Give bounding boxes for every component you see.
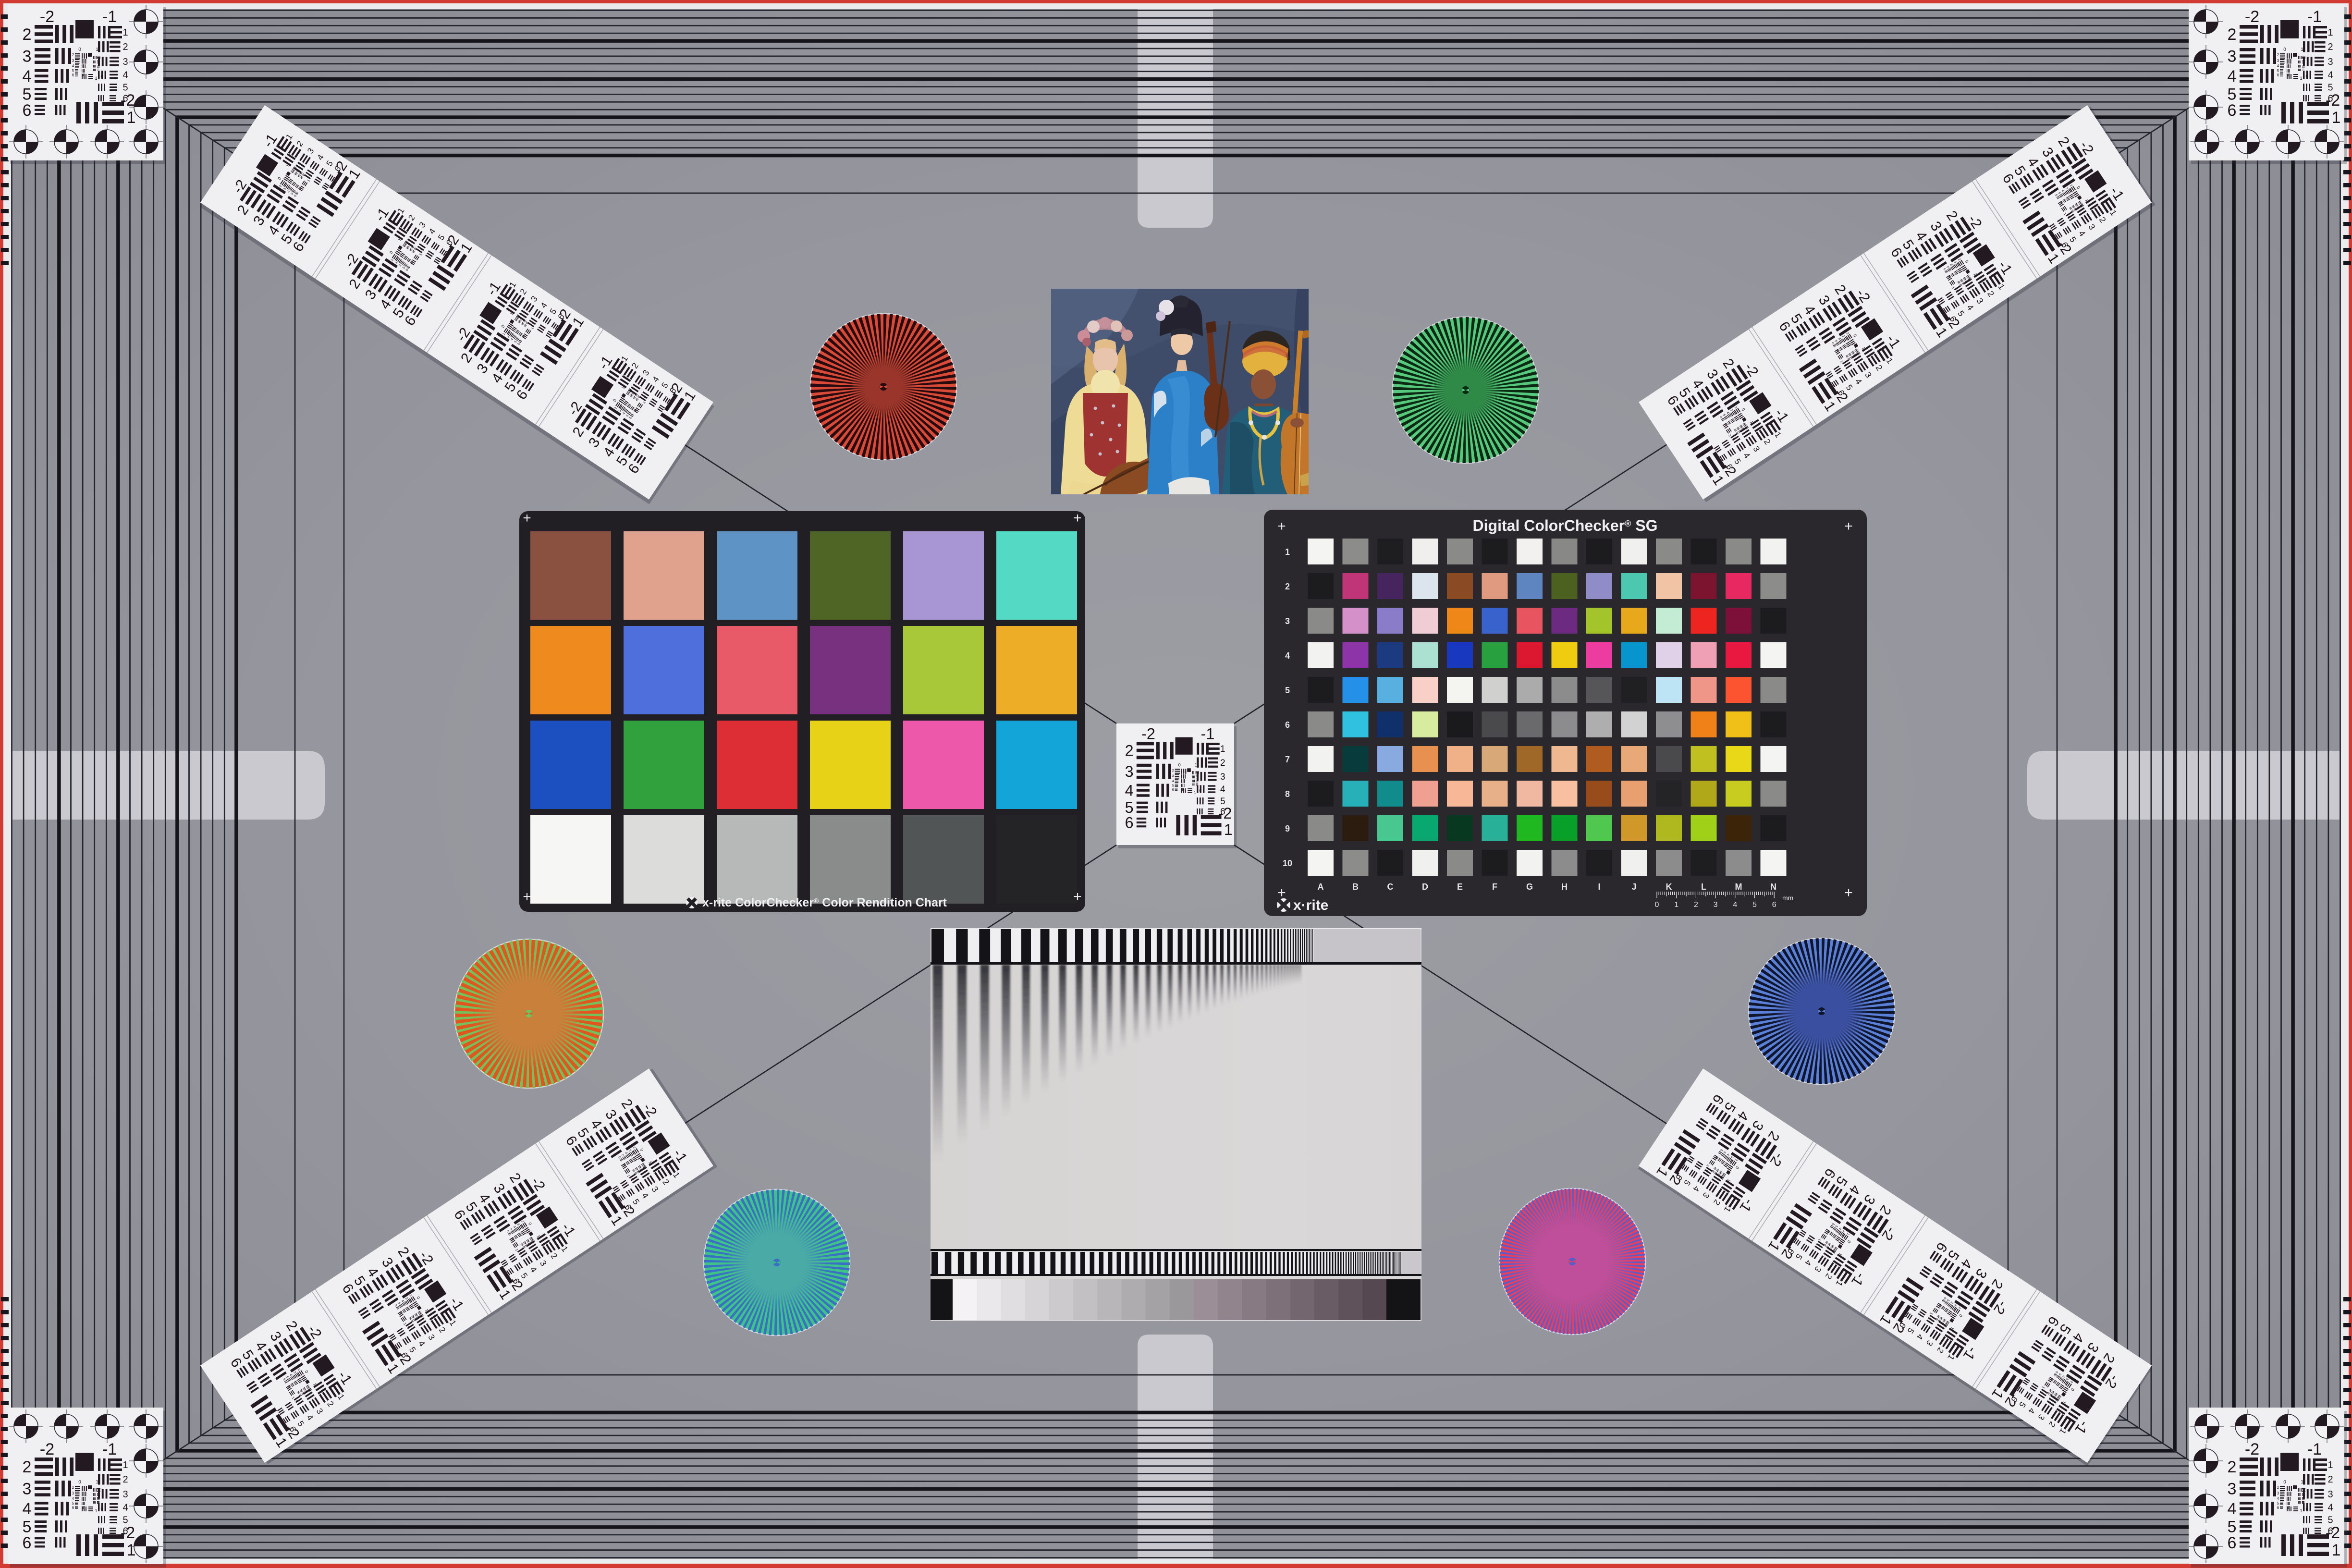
- svg-text:N: N: [1770, 882, 1776, 892]
- svg-text:9: 9: [1285, 824, 1290, 833]
- svg-text:4: 4: [1733, 901, 1737, 909]
- svg-text:J: J: [1631, 882, 1636, 892]
- svg-text:3: 3: [1285, 616, 1290, 626]
- svg-text:x·rite: x·rite: [1293, 897, 1328, 913]
- svg-text:3: 3: [1714, 901, 1718, 909]
- svg-text:+: +: [1844, 885, 1853, 901]
- svg-text:F: F: [1492, 882, 1497, 892]
- svg-text:6: 6: [1772, 901, 1776, 909]
- svg-text:8: 8: [1285, 789, 1290, 799]
- svg-text:0: 0: [1655, 901, 1659, 909]
- svg-text:5: 5: [1752, 901, 1757, 909]
- svg-text:+: +: [1277, 518, 1286, 534]
- svg-text:M: M: [1735, 882, 1742, 892]
- svg-text:A: A: [1318, 882, 1324, 892]
- svg-text:7: 7: [1285, 755, 1290, 764]
- svg-text:H: H: [1561, 882, 1568, 892]
- svg-text:2: 2: [1285, 582, 1290, 591]
- svg-text:I: I: [1598, 882, 1600, 892]
- svg-text:+: +: [1844, 518, 1853, 534]
- svg-text:B: B: [1352, 882, 1359, 892]
- svg-text:x-rite ColorChecker® Color Ren: x-rite ColorChecker® Color Rendition Cha…: [702, 896, 947, 909]
- svg-text:2: 2: [1694, 901, 1698, 909]
- svg-text:10: 10: [1283, 858, 1292, 868]
- svg-text:+: +: [523, 510, 531, 526]
- svg-text:+: +: [1073, 889, 1082, 905]
- svg-text:D: D: [1422, 882, 1428, 892]
- svg-text:E: E: [1457, 882, 1463, 892]
- svg-text:+: +: [1073, 510, 1082, 526]
- svg-text:6: 6: [1285, 720, 1290, 730]
- svg-text:5: 5: [1285, 686, 1290, 695]
- svg-text:L: L: [1701, 882, 1706, 892]
- svg-text:+: +: [1277, 885, 1286, 901]
- svg-text:4: 4: [1285, 651, 1290, 661]
- svg-text:C: C: [1387, 882, 1394, 892]
- svg-text:G: G: [1526, 882, 1533, 892]
- svg-text:K: K: [1666, 882, 1672, 892]
- svg-text:mm: mm: [1782, 894, 1793, 902]
- svg-text:1: 1: [1674, 901, 1678, 909]
- svg-text:+: +: [523, 889, 531, 905]
- svg-text:1: 1: [1285, 547, 1290, 557]
